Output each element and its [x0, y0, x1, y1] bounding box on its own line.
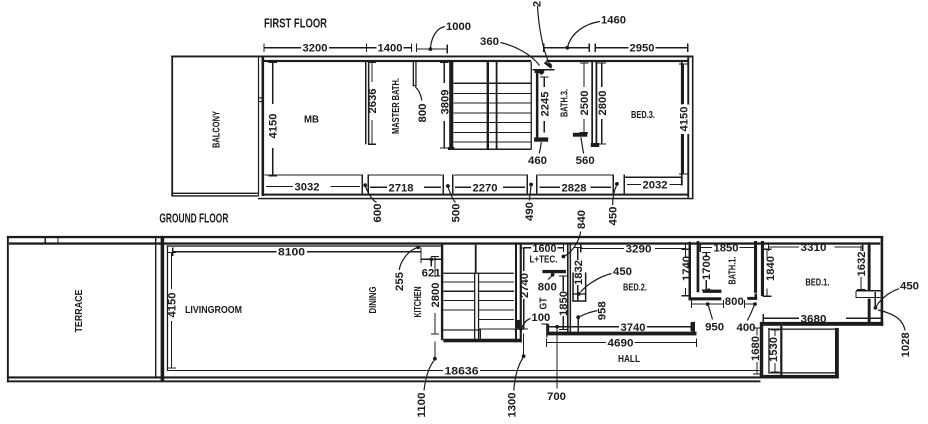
svg-text:2950: 2950: [630, 43, 655, 55]
svg-text:HALL: HALL: [618, 353, 640, 365]
svg-text:3740: 3740: [621, 322, 646, 334]
svg-text:700: 700: [547, 391, 566, 403]
svg-text:1100: 1100: [416, 393, 428, 418]
svg-text:1460: 1460: [601, 15, 626, 27]
svg-text:1850: 1850: [714, 243, 739, 255]
svg-text:2270: 2270: [473, 182, 498, 194]
svg-text:8100: 8100: [278, 247, 305, 259]
svg-text:MASTER BATH.: MASTER BATH.: [390, 78, 402, 134]
svg-text:4150: 4150: [268, 114, 280, 139]
svg-text:1300: 1300: [507, 393, 519, 418]
svg-text:GT: GT: [537, 297, 549, 309]
svg-text:LIVINGROOM: LIVINGROOM: [185, 304, 242, 316]
svg-text:3032: 3032: [295, 181, 320, 193]
svg-text:2740: 2740: [519, 273, 531, 298]
svg-text:KITCHEN: KITCHEN: [412, 287, 424, 318]
svg-text:DINING: DINING: [367, 287, 379, 314]
svg-text:3290: 3290: [626, 243, 652, 255]
svg-text:800: 800: [538, 281, 557, 293]
svg-text:BED.2.: BED.2.: [623, 281, 647, 293]
svg-text:BED.3.: BED.3.: [631, 109, 655, 121]
svg-text:1000: 1000: [446, 21, 471, 33]
svg-text:BED.1.: BED.1.: [805, 277, 829, 289]
svg-text:950: 950: [705, 321, 724, 333]
svg-text:800: 800: [725, 296, 744, 308]
svg-text:18636: 18636: [445, 366, 479, 378]
svg-text:800: 800: [417, 104, 429, 123]
svg-text:1028: 1028: [900, 332, 912, 357]
svg-text:2245: 2245: [539, 92, 551, 117]
svg-text:500: 500: [451, 204, 463, 223]
svg-text:2500: 2500: [579, 91, 591, 116]
svg-text:460: 460: [528, 155, 547, 167]
svg-text:BALCONY: BALCONY: [211, 111, 223, 148]
svg-text:4150: 4150: [167, 293, 179, 318]
svg-text:360: 360: [480, 36, 499, 48]
svg-text:2800: 2800: [597, 91, 609, 116]
svg-text:MB: MB: [304, 114, 319, 126]
svg-text:255: 255: [394, 272, 406, 291]
svg-text:4150: 4150: [678, 107, 690, 132]
svg-text:600: 600: [372, 204, 384, 223]
svg-text:1700: 1700: [701, 255, 713, 280]
svg-text:BATH.3.: BATH.3.: [559, 89, 571, 117]
svg-text:3200: 3200: [303, 43, 328, 55]
svg-text:450: 450: [607, 207, 619, 226]
svg-text:490: 490: [524, 202, 536, 221]
svg-text:1832: 1832: [573, 260, 585, 285]
svg-text:FIRST FLOOR: FIRST FLOOR: [264, 17, 327, 31]
svg-text:2718: 2718: [389, 182, 414, 194]
svg-text:958: 958: [597, 301, 609, 320]
svg-text:400: 400: [737, 322, 756, 334]
svg-text:2800: 2800: [430, 283, 442, 308]
svg-text:2032: 2032: [643, 180, 668, 192]
svg-text:1400: 1400: [378, 43, 403, 55]
svg-text:L+TEC.: L+TEC.: [530, 254, 558, 266]
svg-text:1530: 1530: [768, 337, 780, 362]
svg-text:100: 100: [531, 312, 550, 324]
svg-text:450: 450: [613, 266, 632, 278]
svg-text:1632: 1632: [856, 252, 868, 277]
svg-text:GROUND FLOOR: GROUND FLOOR: [159, 211, 228, 225]
svg-text:840: 840: [576, 210, 588, 229]
svg-text:2828: 2828: [562, 182, 587, 194]
svg-text:4690: 4690: [608, 338, 634, 350]
svg-text:1680: 1680: [750, 336, 762, 361]
svg-text:1840: 1840: [765, 256, 777, 281]
svg-text:TERRACE: TERRACE: [73, 290, 85, 333]
svg-text:2636: 2636: [367, 89, 379, 114]
svg-text:BATH.1.: BATH.1.: [726, 257, 738, 285]
svg-text:621: 621: [422, 268, 441, 280]
svg-text:450: 450: [900, 280, 919, 292]
svg-text:1740: 1740: [681, 256, 693, 281]
svg-text:560: 560: [576, 155, 595, 167]
svg-text:3310: 3310: [801, 242, 827, 254]
